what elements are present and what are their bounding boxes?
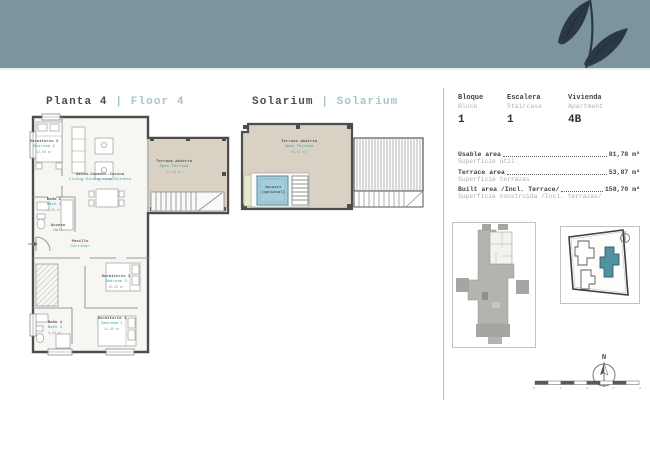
room-label-hall: Acceso Hall [51,224,65,234]
building-key-plan [452,222,536,348]
brochure-page: Planta 4 | Floor 4 Solarium | Solarium [0,0,650,450]
compass-north-label: N [602,354,607,362]
field-apartment: Vivienda Apartment 4B [568,94,603,128]
solarium-plan-drawing [238,118,433,213]
solarium-title-en: Solarium [337,96,399,108]
field-value: 4B [568,114,603,128]
room-area: 3,95 m² [47,208,61,212]
field-label-es: Bloque [458,94,483,103]
scale-tick: 8 [639,387,641,390]
room-label-jacuzzi: Jacuzzi (opcional) [261,186,285,196]
area-value: 158,70 m² [605,186,640,193]
room-area: 10,45 m² [102,285,131,289]
dot-leader [507,174,607,175]
area-label-en: Terrace area [458,169,505,176]
area-row-usable: Usable area 81,78 m² [458,149,640,158]
room-name-en: Hall [51,229,65,234]
field-label-es: Escalera [507,94,542,103]
room-label-bath-1: Baño 1 Bath 1 4,20 m² [48,321,62,335]
field-label-es: Vivienda [568,94,603,103]
room-label-solarium-terrace: Terraza abierta Open Terrace 42,62 m² [281,140,317,154]
room-area: 4,20 m² [48,331,62,335]
field-value: 1 [507,114,542,128]
area-summary: Usable area 81,78 m² Superficie útil Ter… [458,149,640,202]
area-row-terrace: Terrace area 53,87 m² [458,167,640,176]
room-area: 42,62 m² [281,150,317,154]
solarium-title: Solarium | Solarium [252,96,398,108]
site-key-plan [560,226,640,304]
floor-plan-title-divider: | [115,96,123,108]
room-label-bedroom-2: Dormitorio 2 Bedroom 2 12,06 m² [30,140,59,154]
solarium-title-es: Solarium [252,96,314,108]
dot-leader [503,156,607,157]
area-value: 53,87 m² [609,169,640,176]
room-area: 12,60 m² [98,327,127,331]
area-label-en: Usable area [458,151,501,158]
room-name-en: Living-Dining room-Kitchen [69,178,131,183]
field-label-en: Staircase [507,103,542,111]
floor-plan-title: Planta 4 | Floor 4 [46,96,185,108]
floor-plan-title-en: Floor 4 [131,96,185,108]
room-area: 12,06 m² [30,150,59,154]
field-label-en: Block [458,103,483,111]
field-value: 1 [458,114,483,128]
dot-leader [561,191,602,192]
room-label-living: Salón-Comedor-Cocina Living-Dining room-… [69,173,131,183]
scale-tick: 4 [586,387,588,390]
banner-accent-line [0,68,650,70]
room-name-en: Corridor [70,245,89,250]
scale-tick: 6 [613,387,615,390]
area-label-es: Superficie terrazas [458,176,640,185]
panel-divider [443,88,444,400]
field-staircase: Escalera Staircase 1 [507,94,542,128]
area-label-es: Superficie útil [458,158,640,167]
field-block: Bloque Block 1 [458,94,483,128]
jacuzzi-label-line2: (opcional) [261,191,285,196]
area-label-es: Superficie construida /Incl. terrazas/ [458,193,640,202]
floor-plan-title-es: Planta 4 [46,96,108,108]
field-label-en: Apartment [568,103,603,111]
scale-tick: 0 [533,387,535,390]
scale-bar [533,380,641,386]
room-label-open-terrace: Terraza abierta Open Terrace 11,25 m² [156,160,192,174]
room-label-corridor: Pasillo Corridor [70,240,89,250]
room-label-bath-2: Baño 2 Bath 2 3,95 m² [47,198,61,212]
scale-tick: 2 [560,387,562,390]
leaf-decoration-icon [540,0,650,68]
area-label-en: Built area /Incl. Terrace/ [458,186,559,193]
room-label-bedroom-3: Dormitorio 3 Bedroom 3 10,45 m² [102,275,131,289]
room-label-bedroom-1: Dormitorio 1 Bedroom 1 12,60 m² [98,317,127,331]
area-value: 81,78 m² [609,151,640,158]
area-row-built: Built area /Incl. Terrace/ 158,70 m² [458,184,640,193]
room-area: 11,25 m² [156,170,192,174]
solarium-title-divider: | [321,96,329,108]
scale-bar-labels: 0 2 4 6 8 [533,387,641,390]
